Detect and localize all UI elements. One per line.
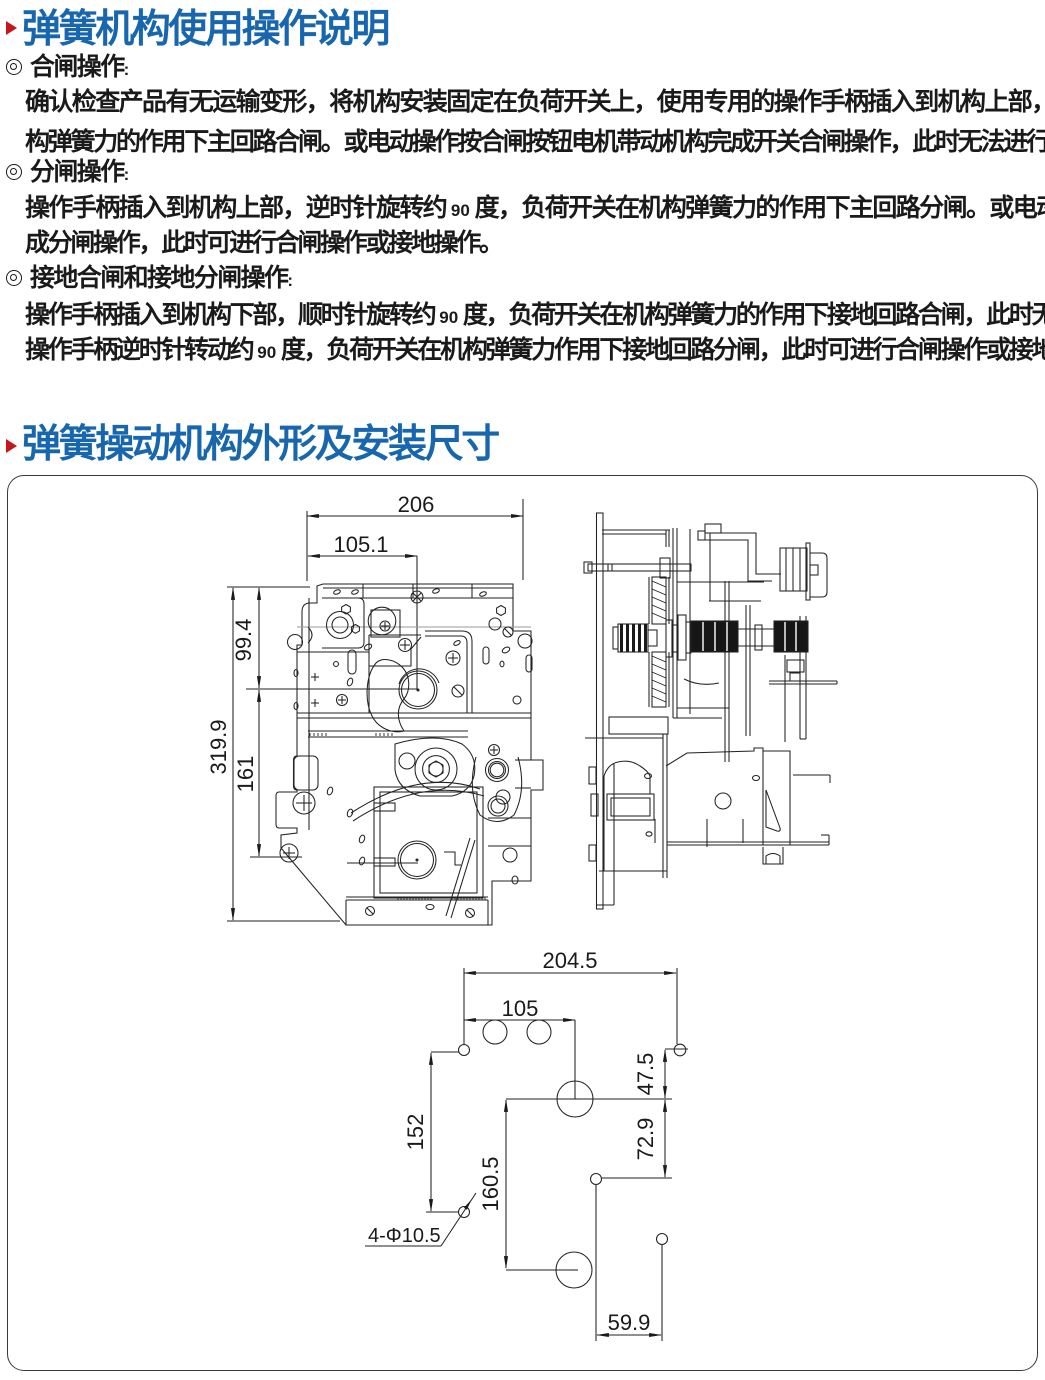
svg-text:72.9: 72.9 bbox=[633, 1118, 658, 1161]
svg-text:59.9: 59.9 bbox=[608, 1310, 651, 1335]
svg-text:4-Φ10.5: 4-Φ10.5 bbox=[368, 1225, 441, 1247]
svg-text:319.9: 319.9 bbox=[206, 719, 231, 774]
svg-text:99.4: 99.4 bbox=[231, 619, 256, 662]
svg-text:152: 152 bbox=[403, 1114, 428, 1151]
svg-text:160.5: 160.5 bbox=[478, 1156, 503, 1211]
svg-text:105: 105 bbox=[502, 996, 539, 1021]
svg-text:206: 206 bbox=[398, 492, 435, 517]
svg-text:47.5: 47.5 bbox=[633, 1053, 658, 1096]
svg-text:105.1: 105.1 bbox=[333, 532, 388, 557]
svg-text:161: 161 bbox=[233, 756, 258, 793]
svg-text:204.5: 204.5 bbox=[542, 948, 597, 973]
